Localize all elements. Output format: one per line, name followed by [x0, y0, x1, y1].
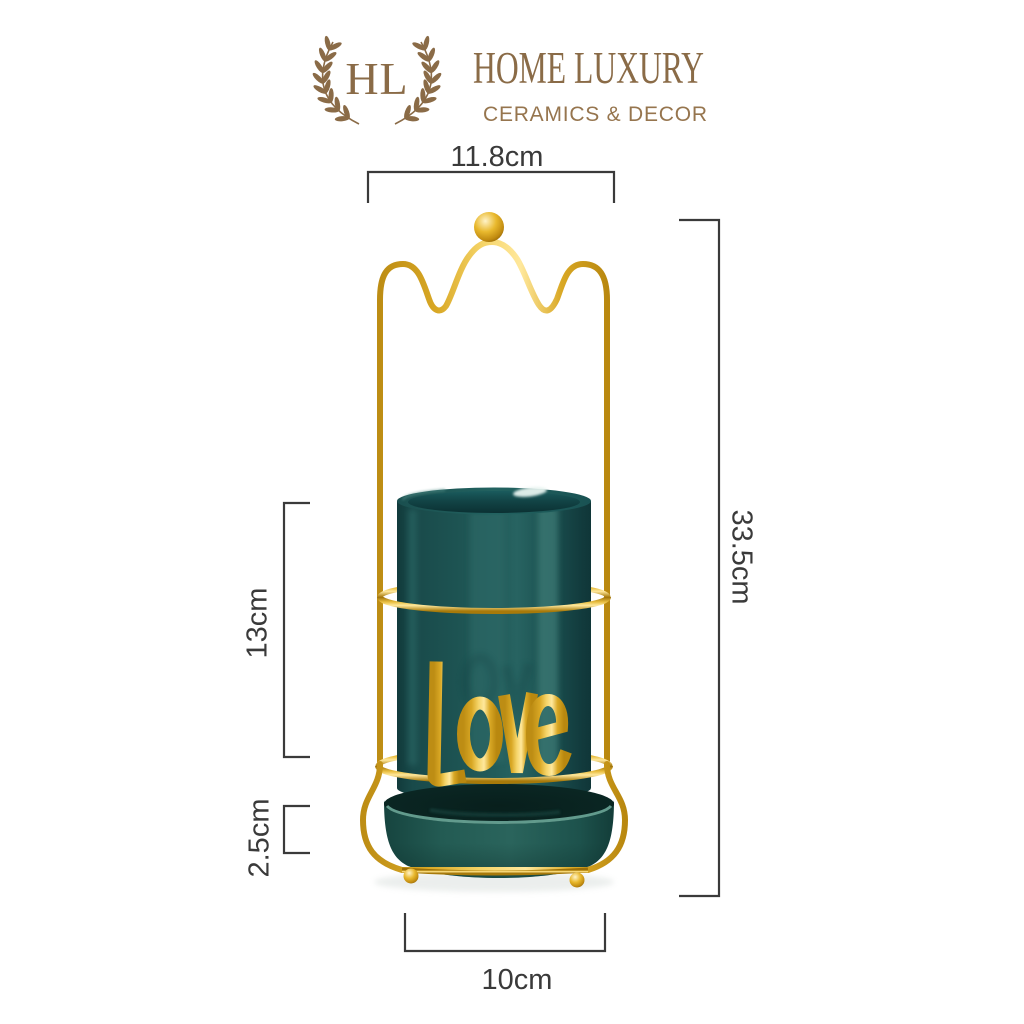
svg-text:10cm: 10cm	[482, 964, 553, 996]
svg-text:11.8cm: 11.8cm	[451, 141, 544, 173]
svg-text:33.5cm: 33.5cm	[725, 509, 757, 604]
svg-text:CERAMICS & DECOR: CERAMICS & DECOR	[483, 103, 707, 126]
svg-text:13cm: 13cm	[242, 588, 274, 659]
svg-text:HOME LUXURY: HOME LUXURY	[473, 43, 704, 93]
svg-text:HL: HL	[345, 53, 408, 104]
svg-text:2.5cm: 2.5cm	[244, 799, 276, 878]
